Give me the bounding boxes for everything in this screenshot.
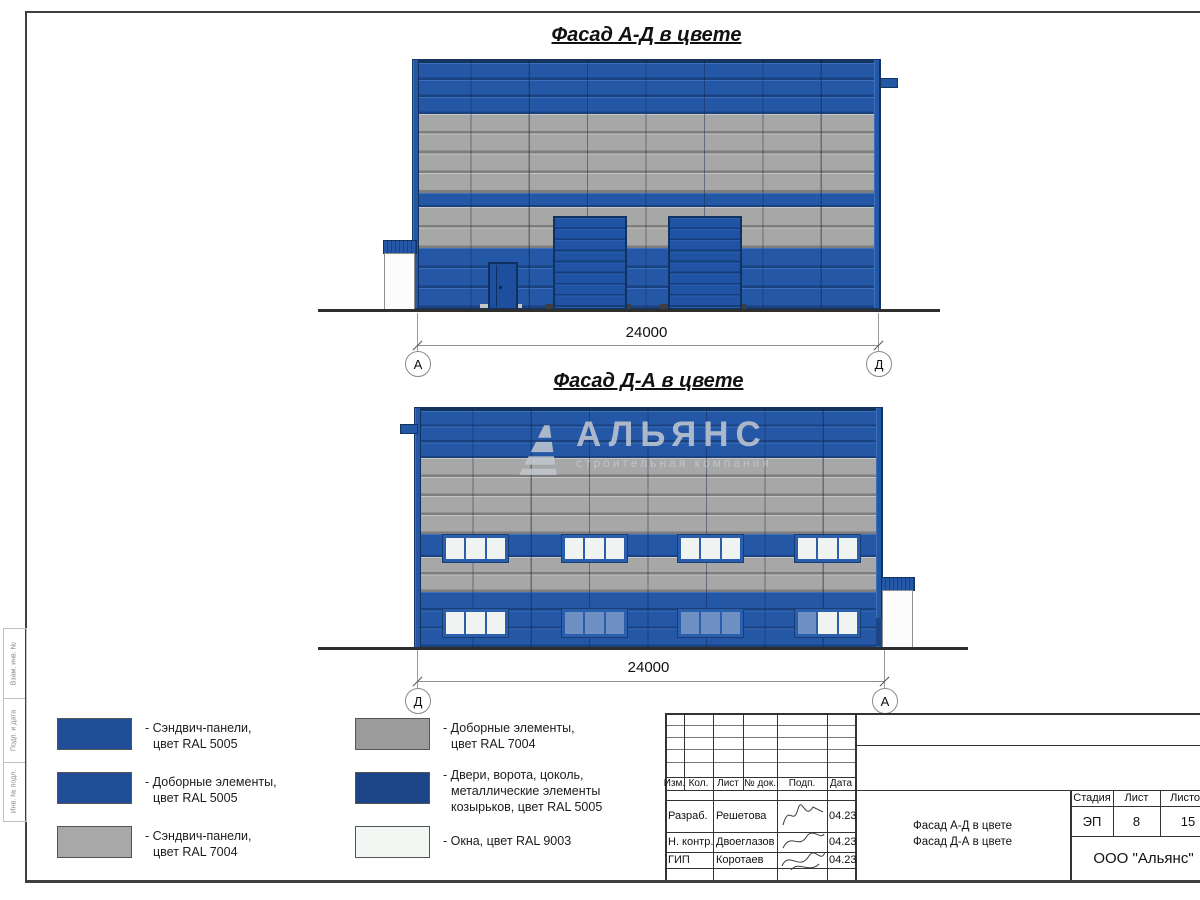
facade2-roof-tab — [400, 424, 418, 434]
titleblock-sheets-label: Листов — [1160, 790, 1200, 806]
window-pane — [565, 612, 583, 634]
facade1-gate-1 — [553, 216, 627, 310]
facade1-dim-line — [417, 345, 879, 346]
window-pane — [466, 538, 484, 559]
legend-line: - Сэндвич-панели, — [145, 721, 251, 737]
facade2-axis-marker-a: А — [872, 688, 898, 714]
titleblock-doc-name: Фасад А-Д в цвете Фасад Д-А в цвете — [855, 790, 1070, 880]
legend-swatch-trim-7004 — [355, 718, 430, 750]
legend-line: - Двери, ворота, цоколь, — [443, 768, 602, 784]
facade2-ground-line — [318, 647, 968, 650]
titleblock-sheet-label: Лист — [1113, 790, 1160, 806]
doc-line: Фасад А-Д в цвете — [913, 819, 1012, 835]
window-pane — [701, 538, 719, 559]
legend-line: цвет RAL 7004 — [145, 845, 251, 861]
facade1-ground-line — [318, 309, 940, 312]
window-pane — [585, 538, 603, 559]
legend-label: - Сэндвич-панели, цвет RAL 5005 — [145, 721, 251, 753]
margin-divider — [3, 698, 25, 699]
titleblock-stage-label: Стадия — [1071, 790, 1113, 806]
legend-line: - Доборные элементы, — [443, 721, 575, 737]
titleblock-line — [827, 713, 828, 880]
titleblock-col-podp: Подп. — [777, 777, 827, 790]
watermark-name: АЛЬЯНС — [576, 417, 772, 452]
facade2-dim-value: 24000 — [415, 659, 882, 676]
titleblock-col-data: Дата — [827, 777, 855, 790]
legend-line: цвет RAL 5005 — [145, 791, 277, 807]
titleblock-name: Двоеглазов — [716, 832, 778, 852]
legend-swatch-trim-5005 — [57, 772, 132, 804]
legend-line: металлические элементы — [443, 784, 602, 800]
facade2-window-lower-4 — [795, 609, 860, 637]
titleblock-stage-value: ЭП — [1071, 806, 1113, 836]
facade2-axis-marker-d: Д — [405, 688, 431, 714]
titleblock-col-ndok: № док. — [743, 777, 777, 790]
titleblock-role: ГИП — [668, 852, 713, 868]
facade2-canopy-body — [882, 590, 913, 649]
legend-swatch-windows-9003 — [355, 826, 430, 858]
margin-label: Взам. инв. № — [11, 634, 18, 694]
facade1-canopy-roof — [383, 240, 417, 254]
frame-top-line — [25, 11, 1200, 13]
titleblock-role: Разраб. — [668, 800, 713, 832]
facade2-dim-line — [417, 681, 884, 682]
legend-line: - Окна, цвет RAL 9003 — [443, 834, 571, 850]
window-pane — [701, 612, 719, 634]
window-pane — [839, 612, 857, 634]
legend-swatch-panels-7004 — [57, 826, 132, 858]
legend-label: - Доборные элементы, цвет RAL 7004 — [443, 721, 575, 753]
titleblock-col-list: Лист — [713, 777, 743, 790]
window-pane — [722, 612, 740, 634]
signature-dvoeglazov-korotaev — [779, 830, 827, 874]
signature-reshetova — [780, 797, 826, 831]
window-pane — [681, 612, 699, 634]
window-pane — [798, 538, 816, 559]
titleblock-line — [713, 713, 714, 880]
legend-label: - Окна, цвет RAL 9003 — [443, 834, 571, 850]
facade1-door — [488, 262, 518, 310]
facade1-title: Фасад А-Д в цвете — [413, 24, 880, 47]
window-pane — [565, 538, 583, 559]
facade2-window-upper-2 — [562, 535, 627, 562]
window-pane — [487, 538, 505, 559]
watermark-text: АЛЬЯНС строительная компания — [576, 417, 772, 470]
window-pane — [606, 612, 624, 634]
titleblock-sheet-value: 8 — [1113, 806, 1160, 836]
drawing-sheet: Взам. инв. № Подп. и дата Инв. № подл. Ф… — [0, 0, 1200, 900]
axis-letter: Д — [414, 694, 423, 709]
legend-label: - Доборные элементы, цвет RAL 5005 — [145, 775, 277, 807]
facade1-dim-value: 24000 — [413, 324, 880, 341]
margin-label: Подп. и дата — [11, 701, 18, 761]
legend-line: - Доборные элементы, — [145, 775, 277, 791]
titleblock-company: ООО "Альянс" — [1071, 836, 1200, 880]
titleblock-line — [665, 713, 1200, 715]
legend-line: цвет RAL 5005 — [145, 737, 251, 753]
window-pane — [839, 538, 857, 559]
window-pane — [606, 538, 624, 559]
window-pane — [446, 538, 464, 559]
watermark: АЛЬЯНС строительная компания — [518, 417, 772, 477]
window-pane — [446, 612, 464, 634]
legend-swatch-doors-5005 — [355, 772, 430, 804]
legend-line: цвет RAL 7004 — [443, 737, 575, 753]
facade2-canopy-roof — [881, 577, 915, 591]
window-pane — [722, 538, 740, 559]
facade2-window-lower-1 — [443, 609, 508, 637]
window-pane — [681, 538, 699, 559]
titleblock-date: 04.23 — [829, 800, 855, 832]
facade1-panel-joints — [413, 60, 880, 308]
margin-label: Инв. № подл. — [11, 762, 18, 822]
facade1-canopy-body — [384, 253, 415, 310]
facade2-window-lower-2 — [562, 609, 627, 637]
facade2-window-upper-4 — [795, 535, 860, 562]
window-pane — [798, 612, 816, 634]
legend-label: - Сэндвич-панели, цвет RAL 7004 — [145, 829, 251, 861]
facade1-building — [413, 60, 880, 308]
axis-letter: А — [881, 694, 890, 709]
titleblock-col-kol: Кол. — [684, 777, 713, 790]
titleblock-sheets-value: 15 — [1160, 806, 1200, 836]
legend-swatch-panels-5005 — [57, 718, 132, 750]
doc-line: Фасад Д-А в цвете — [913, 835, 1012, 851]
legend-label: - Двери, ворота, цоколь, металлические э… — [443, 768, 602, 815]
titleblock-date: 04.23 — [829, 852, 855, 868]
titleblock-line — [855, 745, 1200, 746]
alliance-logo-icon — [518, 417, 560, 477]
titleblock-role: Н. контр. — [668, 832, 716, 852]
window-pane — [487, 612, 505, 634]
facade1-gate-2 — [668, 216, 742, 310]
facade2-window-lower-3 — [678, 609, 743, 637]
titleblock-line — [665, 713, 667, 880]
facade2-title: Фасад Д-А в цвете — [415, 370, 882, 393]
window-pane — [466, 612, 484, 634]
titleblock-name: Решетова — [716, 800, 776, 832]
window-pane — [585, 612, 603, 634]
frame-bottom-line — [25, 880, 1200, 883]
window-pane — [818, 612, 836, 634]
facade2-window-upper-1 — [443, 535, 508, 562]
facade2-window-upper-3 — [678, 535, 743, 562]
watermark-tagline: строительная компания — [576, 456, 772, 470]
legend-line: - Сэндвич-панели, — [145, 829, 251, 845]
window-pane — [818, 538, 836, 559]
titleblock-col-izm: Изм. — [665, 777, 684, 790]
titleblock-date: 04.23 — [829, 832, 855, 852]
facade1-roof-tab — [880, 78, 898, 88]
legend-line: козырьков, цвет RAL 5005 — [443, 800, 602, 816]
facade1-corner-right — [874, 60, 880, 308]
titleblock-name: Коротаев — [716, 852, 778, 868]
